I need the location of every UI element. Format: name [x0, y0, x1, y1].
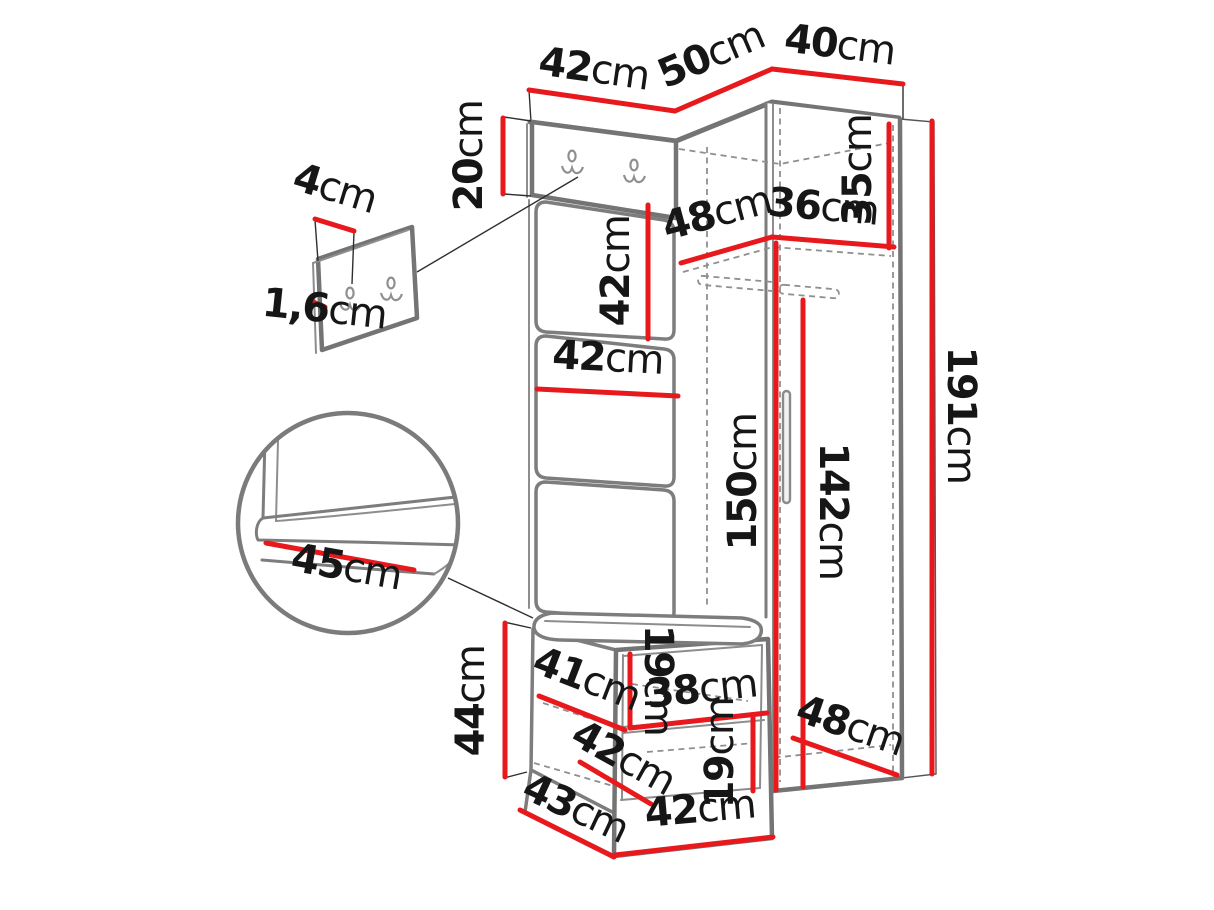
back-cushion-3 [536, 482, 674, 621]
dim-label-mini-panel-depth: 4cm [288, 154, 382, 223]
guide-20-top [504, 117, 531, 121]
dim-label-bench-height: 44cm [448, 646, 494, 757]
dimension-line-mini-panel-depth [315, 219, 354, 231]
dim-label-top-width-left: 42cm [536, 39, 652, 100]
furniture-dimension-diagram: 42cm 50cm 40cm 20cm 4cm 1,6cm 42cm 42cm … [0, 0, 1214, 910]
dim-label-hook-panel-height: 20cm [446, 101, 492, 212]
seat-detail-circle [238, 398, 533, 633]
guide-44-top [504, 622, 531, 628]
dim-label-interior-height: 150cm [720, 414, 766, 551]
dim-label-cushion-height: 42cm [593, 216, 639, 327]
dim-label-top-section-height: 35cm [835, 115, 881, 226]
dim-label-door-height: 142cm [810, 443, 856, 580]
dim-label-cushion-width: 42cm [551, 332, 664, 384]
diagram-canvas: 42cm 50cm 40cm 20cm 4cm 1,6cm 42cm 42cm … [0, 0, 1214, 910]
door-handle [783, 391, 790, 503]
depth-guide-left [315, 220, 318, 261]
circle-connector-line [448, 578, 533, 618]
dim-label-total-height: 191cm [938, 347, 984, 484]
wardrobe-right-front-edge [900, 119, 902, 778]
dim-label-bench-width: 42cm [643, 781, 757, 836]
dim-label-top-width-right: 40cm [782, 16, 897, 75]
